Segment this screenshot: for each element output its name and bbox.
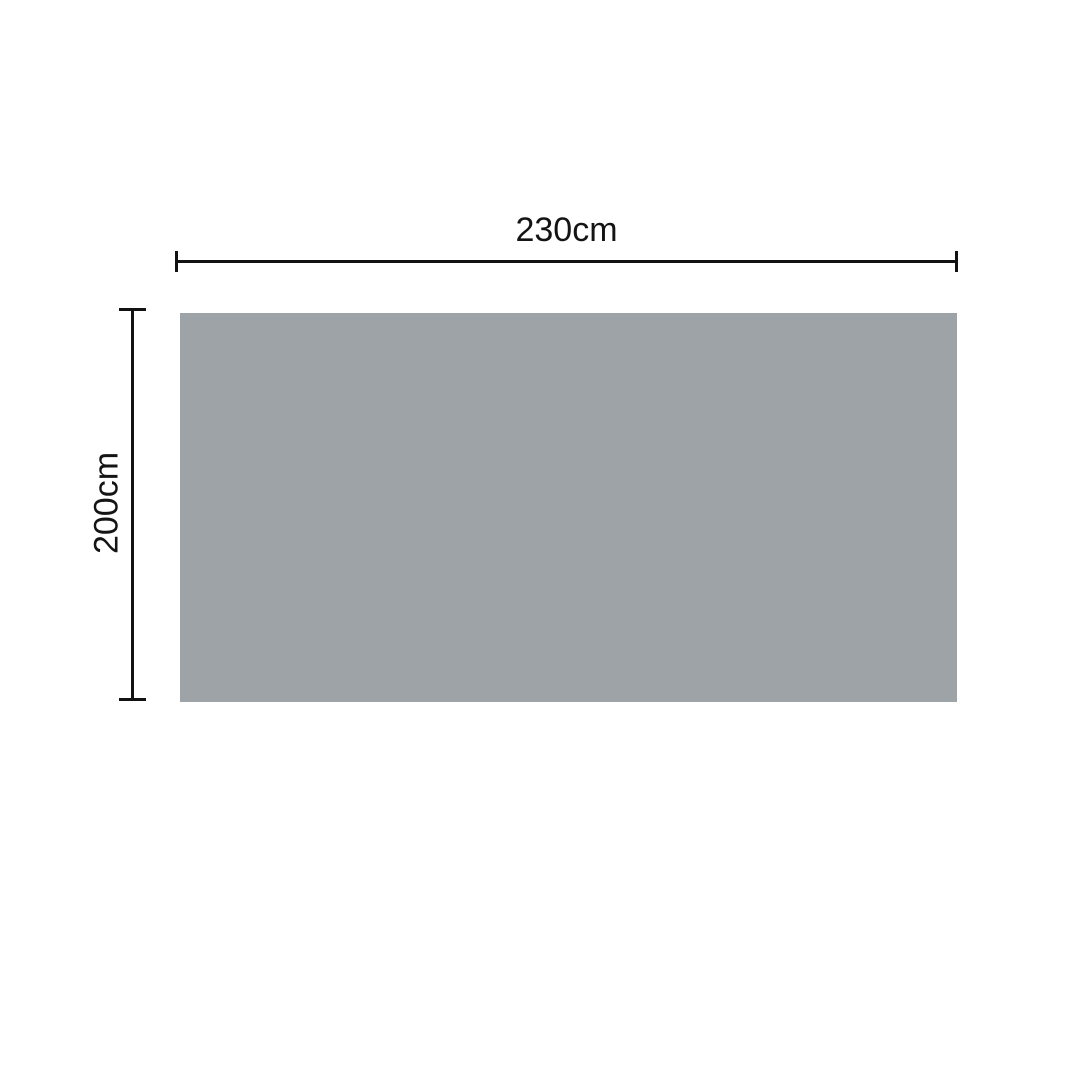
height-dimension-bottom-tick (119, 698, 146, 701)
product-panel-rectangle (180, 313, 957, 702)
width-dimension-right-tick (955, 251, 958, 272)
width-dimension-line (175, 251, 958, 272)
height-dimension-rule (131, 308, 134, 701)
height-dimension-top-tick (119, 308, 146, 311)
width-dimension-label: 230cm (175, 211, 958, 249)
width-dimension-left-tick (175, 251, 178, 272)
height-dimension-line (119, 308, 146, 701)
width-dimension-rule (175, 260, 958, 263)
dimension-diagram: 230cm 200cm (0, 0, 1080, 1080)
